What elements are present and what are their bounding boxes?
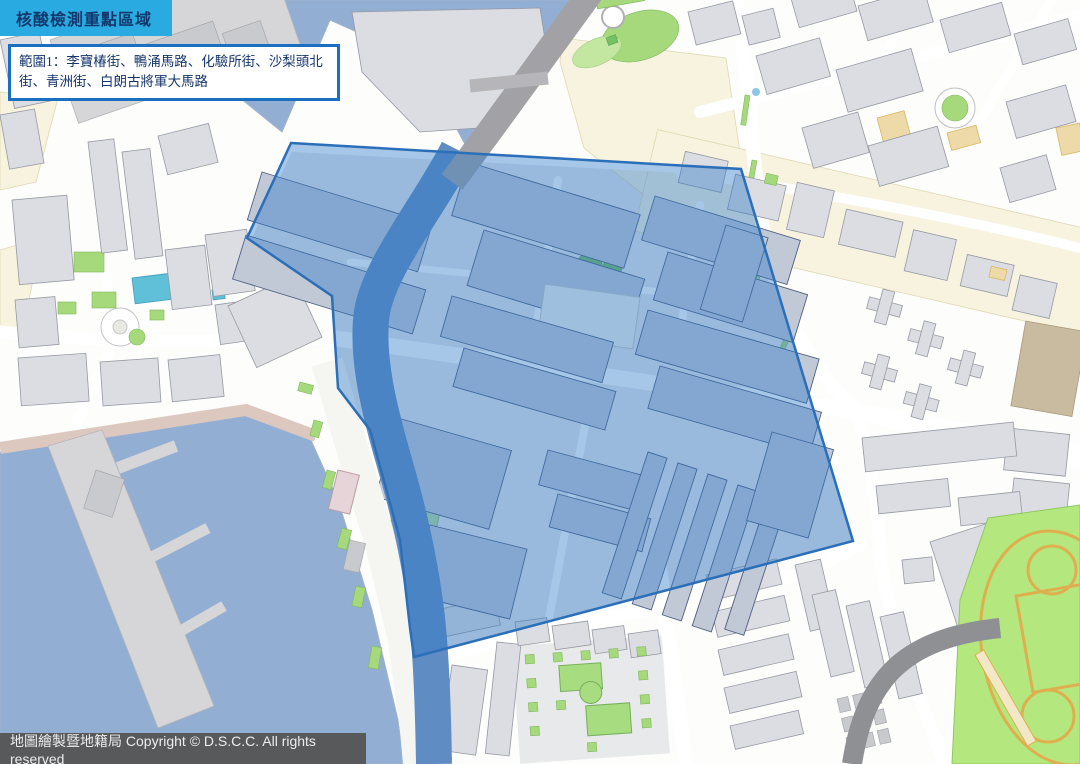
header-bar: 核酸檢測重點區域 (0, 0, 172, 36)
map-canvas (0, 0, 1080, 764)
copyright-text: 地圖繪製暨地籍局 Copyright © D.S.C.C. All rights… (10, 731, 366, 764)
map-screenshot: 核酸檢測重點區域 範圍1：李寶椿街、鴨涌馬路、化驗所街、沙梨頭北街、青洲街、白朗… (0, 0, 1080, 764)
park-fountain (602, 6, 624, 28)
range-description: 範圍1：李寶椿街、鴨涌馬路、化驗所街、沙梨頭北街、青洲街、白朗古將軍大馬路 (19, 54, 323, 89)
tan-building (1011, 321, 1080, 416)
page-title: 核酸檢測重點區域 (16, 6, 152, 30)
copyright-bar: 地圖繪製暨地籍局 Copyright © D.S.C.C. All rights… (0, 733, 366, 764)
range-info-box: 範圍1：李寶椿街、鴨涌馬路、化驗所街、沙梨頭北街、青洲街、白朗古將軍大馬路 (8, 44, 340, 101)
